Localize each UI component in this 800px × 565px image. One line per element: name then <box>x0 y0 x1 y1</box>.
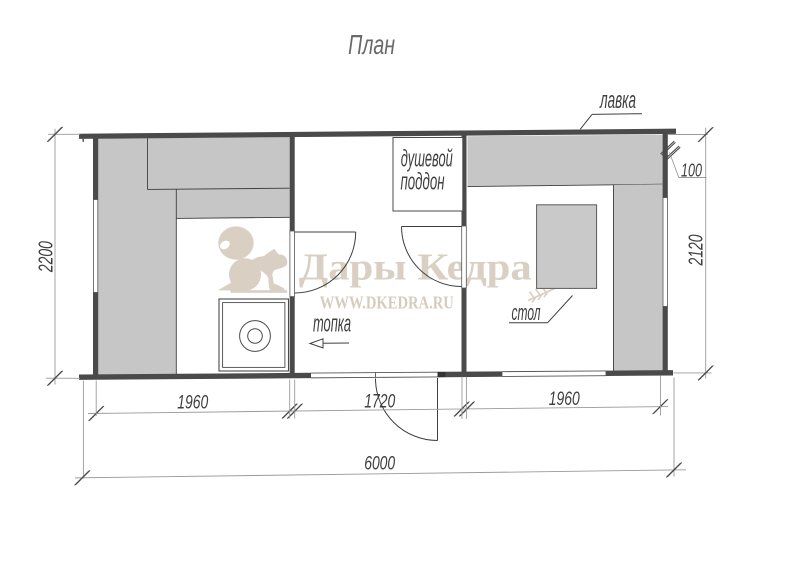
svg-text:Дары Кедра: Дары Кедра <box>299 246 532 288</box>
svg-text:поддон: поддон <box>401 169 445 196</box>
svg-text:1960: 1960 <box>549 388 580 410</box>
svg-text:План: План <box>348 29 395 60</box>
svg-text:лавка: лавка <box>599 87 636 114</box>
svg-text:топка: топка <box>313 311 351 338</box>
svg-text:6000: 6000 <box>364 452 395 474</box>
svg-text:1960: 1960 <box>177 392 208 414</box>
svg-text:100: 100 <box>681 161 702 181</box>
svg-text:WWW.DKEDRA.RU: WWW.DKEDRA.RU <box>320 292 454 312</box>
svg-text:2200: 2200 <box>36 241 58 273</box>
svg-text:1720: 1720 <box>364 390 395 412</box>
svg-text:стол: стол <box>512 300 541 325</box>
svg-text:2120: 2120 <box>686 235 708 267</box>
